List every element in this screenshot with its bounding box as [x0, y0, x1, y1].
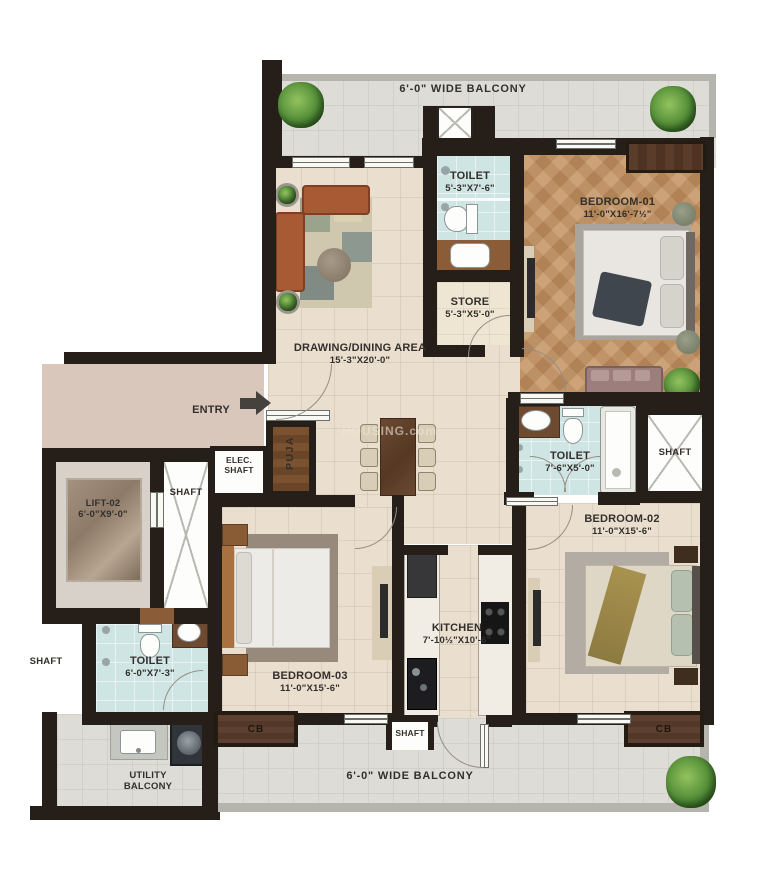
label-text: SHAFT — [224, 465, 253, 475]
wall — [82, 624, 96, 714]
fridge-icon — [407, 554, 437, 598]
entry-arrow-head-icon — [256, 391, 271, 415]
wall — [150, 448, 164, 608]
label-text: SHAFT — [659, 447, 692, 458]
label-text: 6'-0" WIDE BALCONY — [346, 770, 473, 783]
plant-icon — [650, 86, 696, 132]
wall — [208, 495, 222, 725]
plant-icon — [666, 756, 716, 808]
wc-icon — [444, 206, 468, 232]
wc-tank — [138, 624, 162, 633]
room-name: BEDROOM-01 — [580, 196, 655, 209]
faucet-icon — [412, 668, 420, 676]
nightstand — [674, 668, 698, 685]
window — [364, 157, 414, 168]
room-name: BEDROOM-02 — [584, 513, 659, 526]
shower-head-icon — [102, 626, 110, 634]
wc-tank — [562, 408, 584, 417]
closet-cb-bedroom-03: CB — [214, 711, 298, 747]
wall — [404, 545, 448, 555]
closet-cb-bedroom-02: CB — [624, 711, 704, 747]
sofa-cushion — [591, 370, 609, 381]
nightstand — [222, 524, 248, 546]
shaft-kitchen-label: SHAFT — [386, 728, 434, 738]
plant-icon — [279, 293, 297, 311]
label-text: UTILITY — [129, 770, 166, 781]
room-name: DRAWING/DINING AREA — [294, 342, 426, 355]
room-dims: 5'-3"X7'-6" — [445, 183, 495, 194]
pillow — [236, 552, 252, 644]
label-text: SHAFT — [170, 487, 203, 498]
wall — [478, 545, 512, 555]
balcony-parapet — [709, 74, 716, 138]
balcony-parapet — [218, 803, 706, 812]
label-text: BALCONY — [124, 781, 172, 792]
faucet-icon — [420, 684, 427, 691]
elec-shaft-label: ELEC. SHAFT — [212, 455, 266, 475]
window — [577, 714, 631, 724]
label-text: 6'-0" WIDE BALCONY — [399, 83, 526, 96]
shaft-right-label: SHAFT — [648, 447, 702, 458]
wall — [262, 168, 276, 364]
room-dims: 15'-3"X20'-0" — [330, 355, 391, 366]
pillow — [660, 236, 684, 280]
washing-machine-drum — [177, 731, 201, 755]
window — [344, 714, 388, 724]
room-name: BEDROOM-03 — [272, 670, 347, 683]
wall — [42, 608, 222, 624]
room-name: KITCHEN — [432, 622, 482, 635]
sofa — [302, 185, 370, 215]
wall — [473, 106, 495, 140]
ottoman — [676, 330, 700, 354]
pillow — [660, 284, 684, 328]
basin-icon — [450, 243, 490, 268]
door-threshold — [140, 608, 174, 624]
wc-tank — [466, 204, 478, 234]
shaft-beside-lift-box — [164, 462, 208, 608]
puja-label: PUJA — [284, 436, 296, 470]
drawing-dining-label: DRAWING/DINING AREA 15'-3"X20'-0" — [270, 342, 450, 367]
window — [292, 157, 350, 168]
kitchen-label: KITCHEN 7'-10½"X10'-6" — [398, 622, 516, 647]
wall — [392, 495, 404, 725]
bed-fold-line — [272, 548, 274, 646]
room-dims: 6'-0"X9'-0" — [78, 509, 128, 520]
wall — [486, 715, 512, 727]
dining-chair — [418, 448, 436, 467]
entry-label: ENTRY — [184, 404, 238, 417]
dining-chair — [360, 472, 378, 491]
headboard — [222, 544, 234, 648]
room-name: TOILET — [450, 170, 490, 183]
room-dims: 11'-0"X15'-6" — [280, 683, 340, 694]
shower-glass-line — [437, 198, 510, 201]
wall — [42, 448, 56, 608]
toilet-bottom-label: TOILET 6'-0"X7'-3" — [96, 655, 204, 680]
bedroom-01-label: BEDROOM-01 11'-0"X16'-7½" — [535, 196, 700, 221]
room-name: STORE — [451, 296, 490, 309]
coffee-table — [317, 248, 351, 282]
bedroom-02-label: BEDROOM-02 11'-0"X15'-6" — [538, 513, 706, 538]
headboard — [686, 232, 695, 332]
bottom-balcony-label: 6'-0" WIDE BALCONY — [300, 770, 520, 783]
wall — [512, 500, 526, 725]
label-text: SHAFT — [395, 728, 424, 738]
nightstand — [674, 546, 698, 563]
utility-balcony-label: UTILITY BALCONY — [92, 770, 204, 793]
faucet-icon — [136, 748, 141, 753]
shaft-beside-lift-label: SHAFT — [162, 487, 210, 498]
room-name: LIFT-02 — [86, 498, 121, 509]
room-name: TOILET — [130, 655, 170, 668]
room-dims: 11'-0"X16'-7½" — [583, 209, 651, 220]
window — [556, 139, 616, 149]
wall — [82, 712, 208, 725]
tv-icon — [380, 584, 388, 638]
wall — [423, 270, 524, 282]
plant-icon — [278, 186, 296, 204]
label-text: ENTRY — [192, 404, 230, 417]
tv-icon — [533, 590, 541, 646]
cb-label: CB — [656, 724, 672, 735]
wall — [42, 448, 222, 462]
floor-plan: CB CB PUJA 6'-0" WIDE BALCONY TOILET 5'-… — [0, 0, 762, 870]
watermark: HOUSING.com — [342, 424, 437, 438]
lift-cabin-marble — [66, 478, 142, 582]
wall — [64, 352, 276, 364]
tv-icon — [527, 258, 535, 318]
pillow — [671, 614, 693, 656]
dining-chair — [360, 448, 378, 467]
window — [520, 393, 564, 404]
label-text: SHAFT — [30, 656, 63, 667]
duct-box — [437, 106, 473, 140]
room-dims: 5'-3"X5'-0" — [445, 309, 495, 320]
room-dims: 7'-10½"X10'-6" — [423, 635, 492, 646]
balcony-parapet — [264, 74, 716, 81]
top-balcony-label: 6'-0" WIDE BALCONY — [338, 83, 588, 96]
wardrobe — [626, 141, 706, 173]
room-dims: 7'-6"X5'-0" — [545, 463, 595, 474]
pillow — [671, 570, 693, 612]
wall — [636, 403, 648, 503]
toilet-mid-label: TOILET 7'-6"X5'-0" — [512, 450, 628, 475]
shaft-west-label: SHAFT — [14, 656, 78, 667]
dining-chair — [418, 472, 436, 491]
bedroom-03-label: BEDROOM-03 11'-0"X15'-6" — [228, 670, 392, 695]
sofa-cushion — [635, 370, 650, 381]
toilet-top-label: TOILET 5'-3"X7'-6" — [420, 170, 520, 195]
basin-icon — [521, 410, 551, 431]
entry-arrow-icon — [240, 398, 256, 409]
wall — [598, 492, 640, 505]
room-name: TOILET — [550, 450, 590, 463]
sofa-cushion — [613, 370, 631, 381]
basin-icon — [177, 622, 201, 642]
room-dims: 11'-0"X15'-6" — [592, 526, 652, 537]
label-text: ELEC. — [226, 455, 252, 465]
wall — [42, 712, 57, 808]
lift-label: LIFT-02 6'-0"X9'-0" — [56, 498, 150, 521]
wall — [700, 137, 714, 407]
cb-label: CB — [248, 724, 264, 735]
wc-icon — [563, 418, 583, 444]
wall — [30, 806, 220, 820]
wall — [423, 106, 437, 140]
sofa — [275, 212, 305, 292]
store-label: STORE 5'-3"X5'-0" — [420, 296, 520, 321]
room-dims: 6'-0"X7'-3" — [125, 668, 175, 679]
plant-icon — [278, 82, 324, 128]
wall — [702, 403, 714, 503]
